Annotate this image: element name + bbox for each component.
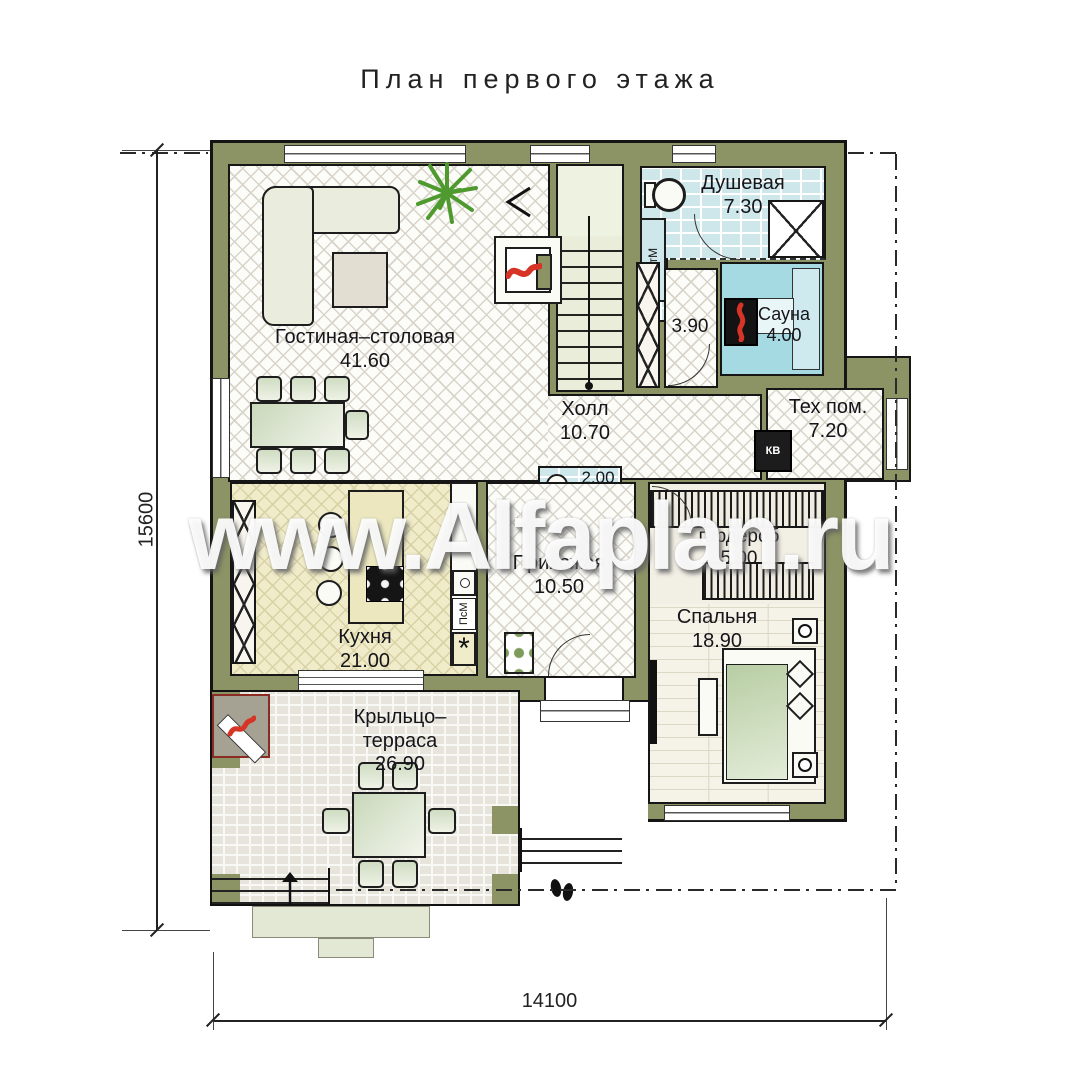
fireplace-flame-icon	[506, 260, 542, 284]
kitchen-terrace-door	[298, 670, 424, 692]
overhang-line	[336, 889, 896, 891]
terrace-steps	[212, 868, 330, 904]
label-living: Гостиная–столовая 41.60	[240, 326, 490, 373]
closet-strip	[636, 262, 660, 388]
floor-plan-canvas: План первого этажа СтМ	[0, 0, 1080, 1080]
dining-chair	[256, 448, 282, 474]
entry-radiator	[504, 632, 534, 674]
tech-window	[886, 398, 908, 470]
dishwasher-label: ПсМ	[458, 603, 470, 626]
terrace-pier	[492, 806, 518, 834]
dim-label-bottom: 14100	[213, 990, 886, 1013]
watermark: www.Alfaplan.ru	[0, 482, 1080, 592]
dim-ext	[886, 898, 887, 1030]
label-shower: Душевая 7.30	[668, 172, 818, 219]
coffee-table	[332, 252, 388, 308]
porch-steps	[520, 828, 622, 872]
terrace-table	[352, 792, 426, 858]
staircase	[556, 164, 624, 392]
dining-chair	[290, 448, 316, 474]
ground-pad	[252, 906, 430, 938]
ground-pad	[318, 938, 374, 958]
nightstand	[792, 752, 818, 778]
dim-line-bottom	[213, 1020, 886, 1022]
stair-window-top	[530, 145, 590, 163]
bedroom-dresser	[698, 678, 718, 736]
overhang-line	[120, 152, 208, 154]
outdoor-fireplace	[212, 694, 270, 758]
label-tech: Тех пом. 7.20	[768, 396, 888, 443]
entrance-opening	[544, 678, 624, 702]
terrace-chair	[392, 860, 418, 888]
dining-chair	[290, 376, 316, 402]
bed-pillow	[786, 660, 814, 688]
dim-ext	[122, 150, 210, 151]
sofa-left	[262, 186, 314, 326]
steps-up-arrow-icon	[278, 870, 302, 904]
living-window-left	[212, 378, 230, 478]
bbq-flame-icon	[226, 712, 256, 742]
stair-direction-arrow-icon	[504, 186, 532, 218]
label-bedroom: Спальня 18.90	[652, 606, 782, 653]
label-hall: Холл 10.70	[520, 398, 650, 445]
burner-unit: *	[452, 632, 476, 666]
dishwasher: ПсМ	[452, 598, 476, 630]
lamp	[798, 758, 812, 772]
lamp	[798, 624, 812, 638]
terrace-chair	[428, 808, 456, 834]
burner-symbol-icon: *	[458, 644, 470, 654]
fireplace	[494, 236, 562, 304]
boiler-label: КВ	[766, 445, 781, 457]
dining-chair	[324, 376, 350, 402]
dining-table	[250, 402, 345, 448]
dining-chair	[345, 410, 369, 440]
plant-icon	[414, 160, 480, 226]
shower-window-top	[672, 145, 716, 163]
bed-blanket	[726, 664, 788, 780]
stair-railing	[588, 216, 590, 388]
stair-treads	[558, 236, 622, 390]
label-sauna: Сауна 4.00	[742, 304, 826, 346]
label-kitchen: Кухня 21.00	[300, 626, 430, 673]
nightstand	[792, 618, 818, 644]
dining-chair	[256, 376, 282, 402]
overhang-line	[848, 152, 896, 154]
terrace-chair	[322, 808, 350, 834]
label-corridor: 3.90	[658, 316, 722, 338]
page-title: План первого этажа	[0, 64, 1080, 95]
bed-pillow	[786, 692, 814, 720]
bedroom-tv	[650, 660, 657, 744]
terrace-chair	[358, 860, 384, 888]
dim-ext	[122, 930, 210, 931]
dining-chair	[324, 448, 350, 474]
porch-platform	[540, 700, 630, 722]
bedroom-window	[664, 805, 790, 821]
stair-newel	[585, 382, 593, 390]
label-terrace: Крыльцо– терраса 26.90	[300, 706, 500, 777]
